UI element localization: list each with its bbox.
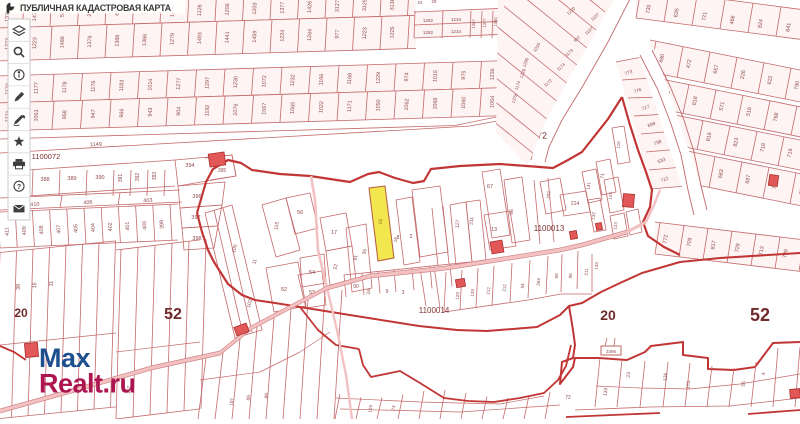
svg-text:68: 68 <box>554 273 559 279</box>
svg-text:133: 133 <box>594 261 600 269</box>
svg-text:214: 214 <box>571 201 580 207</box>
svg-text:15: 15 <box>32 282 38 288</box>
svg-text:211: 211 <box>584 268 590 276</box>
svg-text:407: 407 <box>56 224 62 233</box>
svg-text:1067: 1067 <box>261 103 268 115</box>
svg-text:1177: 1177 <box>33 82 40 94</box>
svg-text:74: 74 <box>391 405 396 411</box>
svg-text:1192: 1192 <box>204 105 211 117</box>
svg-text:399: 399 <box>159 220 165 229</box>
svg-text:392: 392 <box>135 173 141 182</box>
svg-text:1297: 1297 <box>204 77 211 89</box>
svg-text:72: 72 <box>565 395 571 401</box>
svg-text:904: 904 <box>176 107 183 116</box>
svg-text:170: 170 <box>686 380 693 389</box>
svg-text:1236: 1236 <box>489 68 496 80</box>
svg-text:71: 71 <box>600 173 606 179</box>
svg-text:1126: 1126 <box>197 4 204 16</box>
svg-text:1178: 1178 <box>62 81 69 93</box>
svg-text:1171: 1171 <box>347 100 354 112</box>
svg-text:1206: 1206 <box>224 3 231 15</box>
svg-text:398: 398 <box>192 236 201 242</box>
svg-text:977: 977 <box>335 29 342 38</box>
svg-text:3125: 3125 <box>362 0 369 11</box>
svg-text:1183: 1183 <box>119 80 126 92</box>
svg-text:67: 67 <box>487 184 493 190</box>
svg-text:89: 89 <box>264 393 270 399</box>
svg-text:1176: 1176 <box>90 80 97 92</box>
svg-text:1277: 1277 <box>176 78 183 90</box>
svg-text:402: 402 <box>108 222 114 231</box>
svg-text:1282: 1282 <box>423 30 434 35</box>
svg-text:1100013: 1100013 <box>534 224 565 233</box>
svg-text:3127: 3127 <box>334 0 341 12</box>
svg-text:1279: 1279 <box>169 33 176 45</box>
svg-text:409: 409 <box>22 226 28 235</box>
svg-text:127: 127 <box>455 219 462 228</box>
svg-text:107: 107 <box>229 397 235 405</box>
svg-text:393: 393 <box>152 172 158 181</box>
svg-text:1377: 1377 <box>279 2 286 14</box>
svg-text:69: 69 <box>246 395 252 401</box>
svg-text:958: 958 <box>62 110 69 119</box>
svg-text:116: 116 <box>616 141 622 149</box>
svg-text:1063: 1063 <box>33 109 40 121</box>
svg-text:135: 135 <box>663 372 670 381</box>
svg-text:212: 212 <box>486 286 492 294</box>
svg-text:1149: 1149 <box>90 142 102 149</box>
svg-text:29: 29 <box>432 0 437 4</box>
svg-text:132: 132 <box>591 211 597 219</box>
svg-text:1076: 1076 <box>233 103 240 115</box>
svg-text:1064: 1064 <box>489 96 496 108</box>
svg-text:3: 3 <box>402 290 405 296</box>
svg-text:129: 129 <box>368 404 374 412</box>
svg-text:38: 38 <box>16 284 22 290</box>
svg-text:1282: 1282 <box>423 18 434 23</box>
svg-text:1493: 1493 <box>197 32 204 44</box>
svg-text:1488: 1488 <box>59 36 66 48</box>
svg-text:11: 11 <box>49 281 55 287</box>
svg-text:1225: 1225 <box>389 26 396 38</box>
svg-text:212: 212 <box>502 283 508 291</box>
svg-text:394: 394 <box>185 163 194 169</box>
svg-text:1367: 1367 <box>471 18 477 28</box>
svg-text:88: 88 <box>568 273 573 279</box>
svg-text:1100072: 1100072 <box>32 152 61 161</box>
svg-text:1441: 1441 <box>224 31 231 43</box>
svg-text:1072: 1072 <box>261 75 268 87</box>
svg-text:9: 9 <box>386 289 389 295</box>
svg-text:1203: 1203 <box>252 2 259 14</box>
svg-text:1388: 1388 <box>114 35 121 47</box>
svg-text:17: 17 <box>331 230 337 236</box>
svg-text:211: 211 <box>469 216 476 225</box>
svg-text:56: 56 <box>297 210 303 216</box>
svg-text:943: 943 <box>147 108 154 117</box>
svg-text:1168: 1168 <box>347 73 354 85</box>
svg-text:20: 20 <box>600 307 616 323</box>
svg-text:1166: 1166 <box>318 74 325 86</box>
svg-text:1234: 1234 <box>451 29 462 34</box>
svg-text:1065: 1065 <box>290 102 297 114</box>
svg-text:388: 388 <box>40 177 49 183</box>
svg-text:790: 790 <box>794 81 800 91</box>
svg-text:1062: 1062 <box>404 98 411 110</box>
svg-text:1050: 1050 <box>375 99 382 111</box>
svg-text:124: 124 <box>608 191 614 199</box>
svg-text:947: 947 <box>90 109 97 118</box>
svg-text:1426: 1426 <box>307 1 314 13</box>
svg-text:401: 401 <box>125 221 131 230</box>
svg-text:1223: 1223 <box>32 37 39 49</box>
svg-text:410: 410 <box>30 202 39 208</box>
svg-text:405: 405 <box>73 224 79 233</box>
svg-text:390: 390 <box>95 175 104 181</box>
svg-text:55: 55 <box>741 381 747 387</box>
svg-text:1224: 1224 <box>279 30 286 42</box>
svg-text:400: 400 <box>142 221 148 230</box>
svg-text:1068: 1068 <box>432 97 439 109</box>
svg-text:123: 123 <box>613 221 619 229</box>
svg-text:975: 975 <box>461 71 468 80</box>
svg-text:64: 64 <box>520 283 525 289</box>
svg-text:2: 2 <box>409 234 412 240</box>
svg-text:1390: 1390 <box>493 16 499 26</box>
svg-text:389: 389 <box>67 176 76 182</box>
svg-text:133: 133 <box>603 387 610 396</box>
svg-text:395: 395 <box>218 168 227 174</box>
svg-text:128: 128 <box>455 291 461 299</box>
svg-text:8: 8 <box>397 235 400 241</box>
svg-text:1386: 1386 <box>142 34 149 46</box>
svg-text:408: 408 <box>39 225 45 234</box>
svg-text:?: ? <box>17 184 21 191</box>
svg-text:24: 24 <box>418 0 423 5</box>
svg-text:52: 52 <box>164 306 182 323</box>
svg-text:1459: 1459 <box>252 30 259 42</box>
svg-text:Realt.ru: Realt.ru <box>39 369 136 399</box>
svg-text:3136: 3136 <box>389 0 396 11</box>
svg-text:128: 128 <box>470 288 476 296</box>
svg-text:131: 131 <box>586 181 592 189</box>
svg-text:3496: 3496 <box>606 349 617 354</box>
svg-text:1234: 1234 <box>451 17 462 22</box>
svg-text:1022: 1022 <box>318 101 325 113</box>
svg-text:52: 52 <box>281 287 287 293</box>
svg-text:1264: 1264 <box>307 29 314 41</box>
svg-text:1229: 1229 <box>375 72 382 84</box>
svg-text:23: 23 <box>626 372 632 378</box>
svg-text:20: 20 <box>14 306 28 320</box>
svg-text:1232: 1232 <box>290 74 297 86</box>
svg-text:966: 966 <box>119 108 126 117</box>
svg-text:1015: 1015 <box>432 70 439 82</box>
svg-text:1376: 1376 <box>87 35 94 47</box>
svg-text:66: 66 <box>509 209 515 215</box>
svg-text:391: 391 <box>118 174 124 183</box>
svg-text:292: 292 <box>546 190 552 198</box>
svg-text:90: 90 <box>353 284 359 290</box>
svg-text:1060: 1060 <box>461 97 468 109</box>
svg-text:52: 52 <box>750 305 770 325</box>
svg-text:1230: 1230 <box>233 76 240 88</box>
svg-text:ПУБЛИЧНАЯ КАДАСТРОВАЯ КАРТА: ПУБЛИЧНАЯ КАДАСТРОВАЯ КАРТА <box>20 3 172 13</box>
svg-text:1377: 1377 <box>482 17 488 27</box>
svg-text:1014: 1014 <box>147 79 154 91</box>
svg-text:411: 411 <box>4 227 10 236</box>
svg-text:1100014: 1100014 <box>419 306 450 315</box>
svg-text:13: 13 <box>491 227 497 233</box>
svg-text:54: 54 <box>309 270 315 276</box>
svg-text:1223: 1223 <box>362 27 369 39</box>
svg-text:403: 403 <box>143 198 152 204</box>
svg-text:406: 406 <box>83 200 92 206</box>
svg-text:264: 264 <box>536 277 542 285</box>
svg-text:974: 974 <box>404 72 411 81</box>
svg-text:404: 404 <box>90 223 96 232</box>
